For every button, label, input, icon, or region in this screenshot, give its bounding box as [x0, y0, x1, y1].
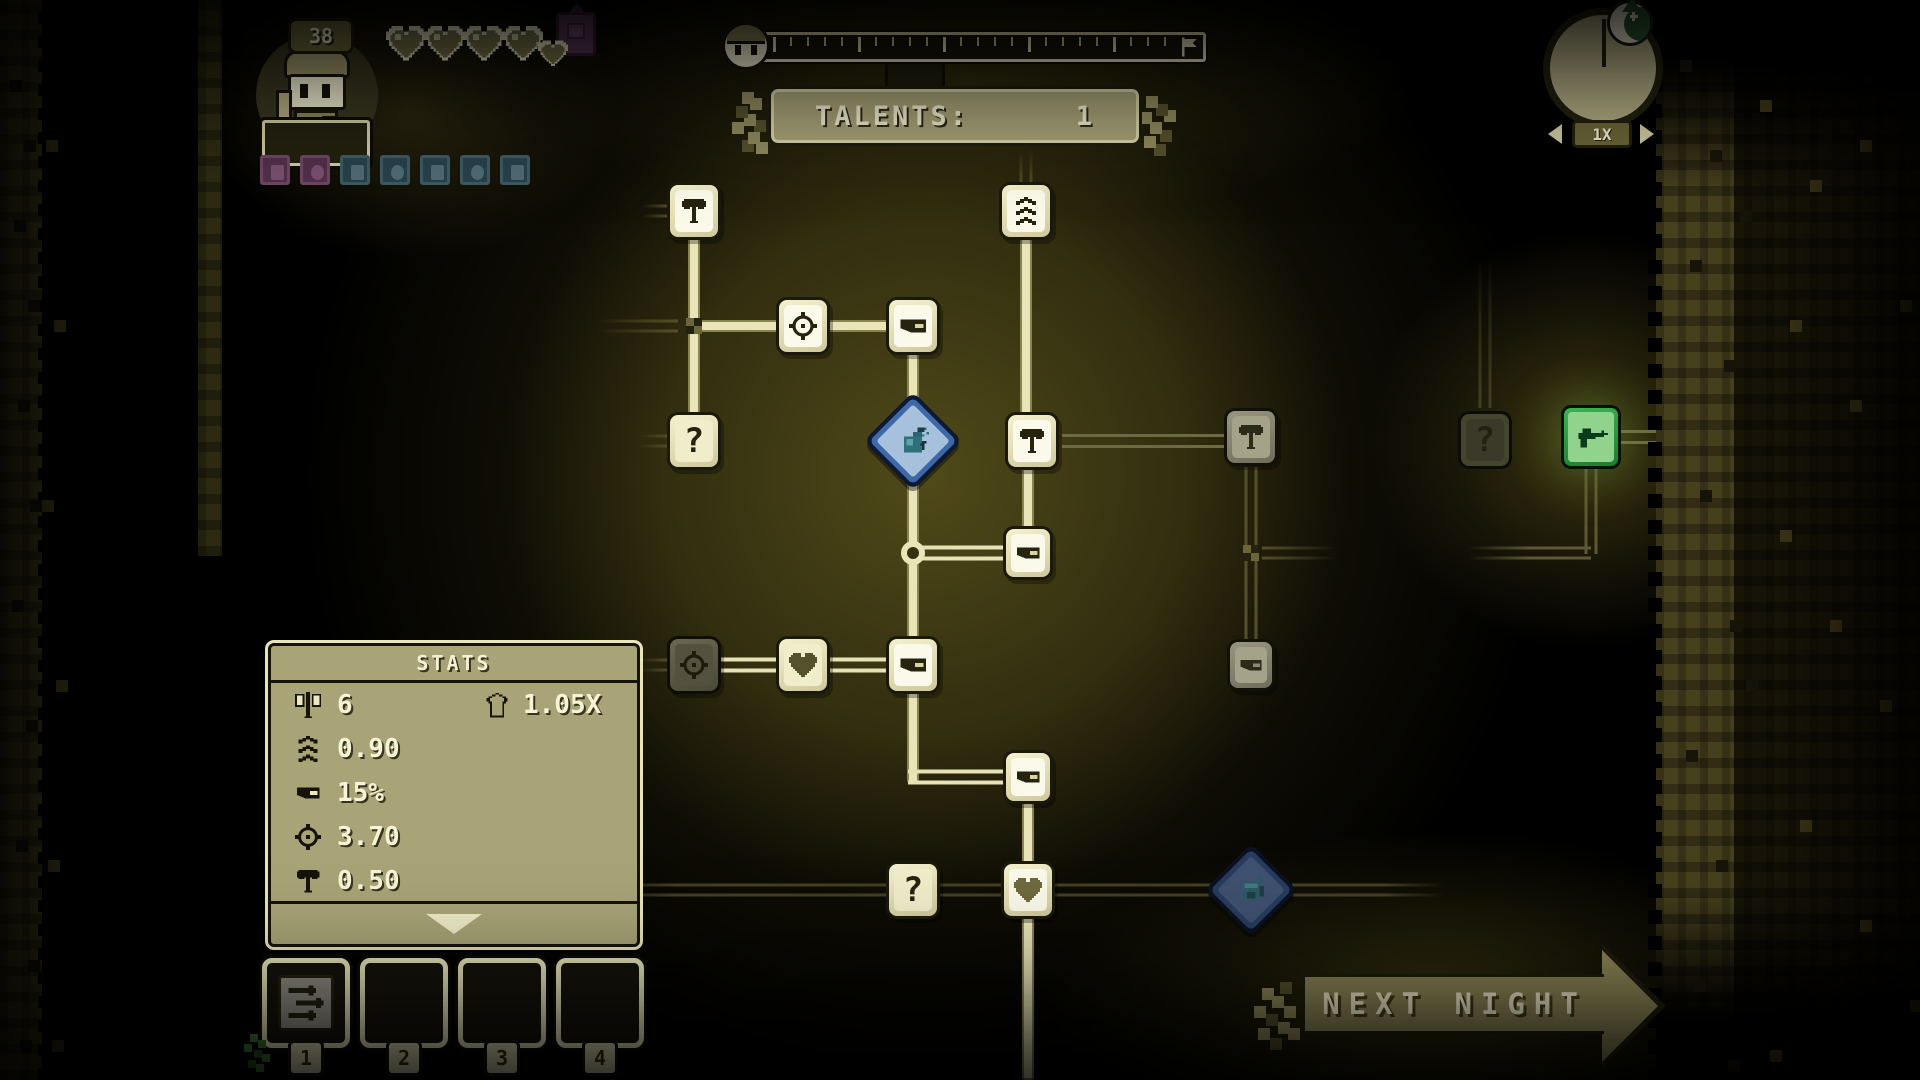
talent-tree-screen: ? ? ? 38 — [0, 0, 1920, 1080]
level-value: 38 — [309, 24, 333, 48]
speed-button[interactable]: 1X — [1572, 120, 1632, 148]
talent-node-crosshair[interactable] — [776, 297, 830, 355]
talents-banner: TALENTS: 1 — [768, 86, 1142, 146]
axe-icon — [293, 690, 323, 720]
hotbar-slot[interactable] — [556, 958, 644, 1048]
track — [1585, 466, 1598, 554]
stats-scroll-down-icon[interactable] — [426, 914, 482, 934]
talent-node-hammer-locked[interactable] — [1224, 408, 1278, 466]
track — [1468, 547, 1591, 560]
track — [1020, 148, 1033, 186]
talent-node-heart[interactable] — [776, 636, 830, 694]
talent-node-backpack-locked[interactable] — [1204, 843, 1297, 936]
track — [1053, 884, 1211, 897]
hotbar-slot[interactable] — [262, 958, 350, 1048]
chevrons-icon — [293, 734, 323, 764]
speed-value: 1X — [1592, 125, 1611, 144]
stats-panel: STATS 6 1.05X 0.90 15% 3.70 0.50 — [268, 643, 640, 947]
banner-dither-right — [1146, 96, 1158, 108]
clock-hand — [1602, 19, 1606, 67]
talent-node-knife[interactable] — [1003, 750, 1053, 804]
bark-pixels — [1680, 60, 1692, 72]
hammer-icon — [678, 195, 710, 227]
stat-row: 3.70 — [271, 815, 637, 859]
hammer-icon — [1235, 421, 1267, 453]
hotbar-slot[interactable] — [458, 958, 546, 1048]
track — [642, 205, 670, 218]
talent-node-question-locked[interactable]: ? — [1458, 411, 1512, 469]
crosshair-icon — [787, 310, 819, 342]
stat-row: 0.90 — [271, 727, 637, 771]
up-arrow-icon — [483, 691, 511, 719]
crosshair-icon — [293, 822, 323, 852]
talent-node-potion-special[interactable] — [864, 392, 963, 491]
stat-value: 15% — [337, 778, 384, 808]
next-night-button[interactable]: NEXT NIGHT — [1302, 974, 1604, 1034]
talent-node-question[interactable]: ? — [886, 861, 940, 919]
status-buff-icon[interactable] — [460, 155, 490, 185]
status-buff-icon[interactable] — [500, 155, 530, 185]
sprout-decoration — [250, 1034, 258, 1042]
status-buff-icon[interactable] — [340, 155, 370, 185]
stat-row: 15% — [271, 771, 637, 815]
bark-strip-left-2 — [198, 0, 222, 556]
speed-left-arrow-icon[interactable] — [1548, 124, 1562, 144]
stat-value: 6 — [337, 690, 353, 720]
track — [1022, 915, 1034, 1080]
track — [908, 770, 1003, 785]
talent-node-heart[interactable] — [1001, 861, 1055, 919]
backpack-icon — [1234, 873, 1268, 907]
track — [1022, 465, 1034, 530]
hammer-icon — [293, 866, 323, 896]
track-crossing — [686, 318, 702, 334]
status-curse-icon[interactable] — [300, 155, 330, 185]
stat-value: 3.70 — [337, 822, 400, 852]
player-face — [288, 74, 346, 110]
talent-node-raygun-highlighted[interactable] — [1561, 405, 1621, 469]
talent-node-knife[interactable] — [886, 636, 940, 694]
question-icon: ? — [684, 424, 704, 458]
crosshair-icon — [678, 649, 710, 681]
hotbar-slot-number: 4 — [582, 1040, 618, 1076]
level-badge: 38 — [288, 18, 354, 54]
hotbar-slot-number: 1 — [288, 1040, 324, 1076]
knife-icon — [1013, 538, 1043, 568]
bark-edge-left — [38, 0, 52, 1080]
knife-icon — [1237, 651, 1265, 679]
bark-pixels — [1760, 100, 1772, 112]
status-buff-icon[interactable] — [420, 155, 450, 185]
stat-value: 1.05X — [523, 690, 601, 720]
heart-icon — [787, 649, 819, 681]
talent-node-chevrons[interactable] — [999, 182, 1053, 240]
track — [640, 659, 670, 672]
status-curse-icon[interactable] — [260, 155, 290, 185]
track — [1479, 256, 1492, 408]
track — [907, 482, 919, 545]
hammer-icon — [1016, 425, 1048, 457]
hotbar-slot[interactable] — [360, 958, 448, 1048]
stat-value: 0.50 — [337, 866, 400, 896]
heart-icon — [1012, 874, 1044, 906]
talent-node-knife[interactable] — [886, 297, 940, 355]
talent-node-hammer[interactable] — [1005, 412, 1059, 470]
talent-node-knife[interactable] — [1003, 526, 1053, 580]
triple-arrows-icon — [278, 975, 334, 1031]
xp-progress-bar — [728, 32, 1206, 62]
track — [1022, 802, 1034, 865]
talent-node-hammer[interactable] — [667, 182, 721, 240]
bark-border-left — [0, 0, 42, 1080]
question-icon: ? — [1475, 423, 1495, 457]
knife-icon — [896, 309, 930, 343]
track — [920, 546, 1006, 561]
talent-node-knife-locked[interactable] — [1227, 639, 1275, 691]
track — [1020, 238, 1032, 418]
knife-icon — [896, 648, 930, 682]
junction-node[interactable] — [901, 541, 925, 565]
player-head-icon — [722, 22, 770, 70]
stats-footer — [271, 901, 637, 944]
track — [1062, 434, 1224, 448]
status-buff-icon[interactable] — [380, 155, 410, 185]
talents-count: 1 — [1076, 101, 1095, 132]
track — [907, 560, 919, 645]
stat-value: 0.90 — [337, 734, 400, 764]
track-crossing — [1243, 545, 1259, 561]
bark-pixels — [10, 80, 22, 92]
stat-row: 0.50 — [271, 859, 637, 903]
track — [828, 658, 890, 673]
chevrons-icon — [1010, 195, 1042, 227]
knife-icon — [1013, 762, 1043, 792]
track — [907, 348, 919, 400]
track — [1262, 547, 1338, 560]
talent-node-crosshair-locked[interactable] — [667, 636, 721, 694]
bark-shade-top-right — [1656, 0, 1920, 190]
next-night-label: NEXT NIGHT — [1322, 987, 1587, 1021]
knife-icon — [293, 778, 323, 808]
flag-icon — [1179, 36, 1201, 58]
track — [1292, 884, 1445, 897]
talent-node-question[interactable]: ? — [667, 412, 721, 470]
hotbar-slot-number: 3 — [484, 1040, 520, 1076]
potion-icon — [895, 423, 931, 459]
track — [596, 320, 678, 333]
bark-pixels — [46, 140, 58, 152]
track — [640, 435, 670, 448]
banner-dither-left — [742, 92, 754, 104]
stats-title: STATS — [271, 646, 637, 683]
stat-multiplier: 1.05X — [483, 683, 601, 727]
next-night-arrowhead-icon — [1602, 950, 1658, 1062]
question-icon: ? — [903, 873, 923, 907]
bark-shade-bottom-right — [1656, 890, 1920, 1080]
heart-icon-small — [536, 36, 570, 70]
track — [940, 884, 1004, 897]
raygun-icon — [1574, 420, 1608, 454]
next-night-dither — [1262, 988, 1274, 1000]
xp-ticks-major — [773, 37, 1173, 52]
speed-right-arrow-icon[interactable] — [1640, 124, 1654, 144]
hotbar-slot-number: 2 — [386, 1040, 422, 1076]
stat-row: 6 1.05X — [271, 683, 637, 727]
talents-label: TALENTS: — [815, 101, 969, 132]
moon-hat-icon — [1622, 0, 1642, 12]
track — [720, 658, 780, 673]
